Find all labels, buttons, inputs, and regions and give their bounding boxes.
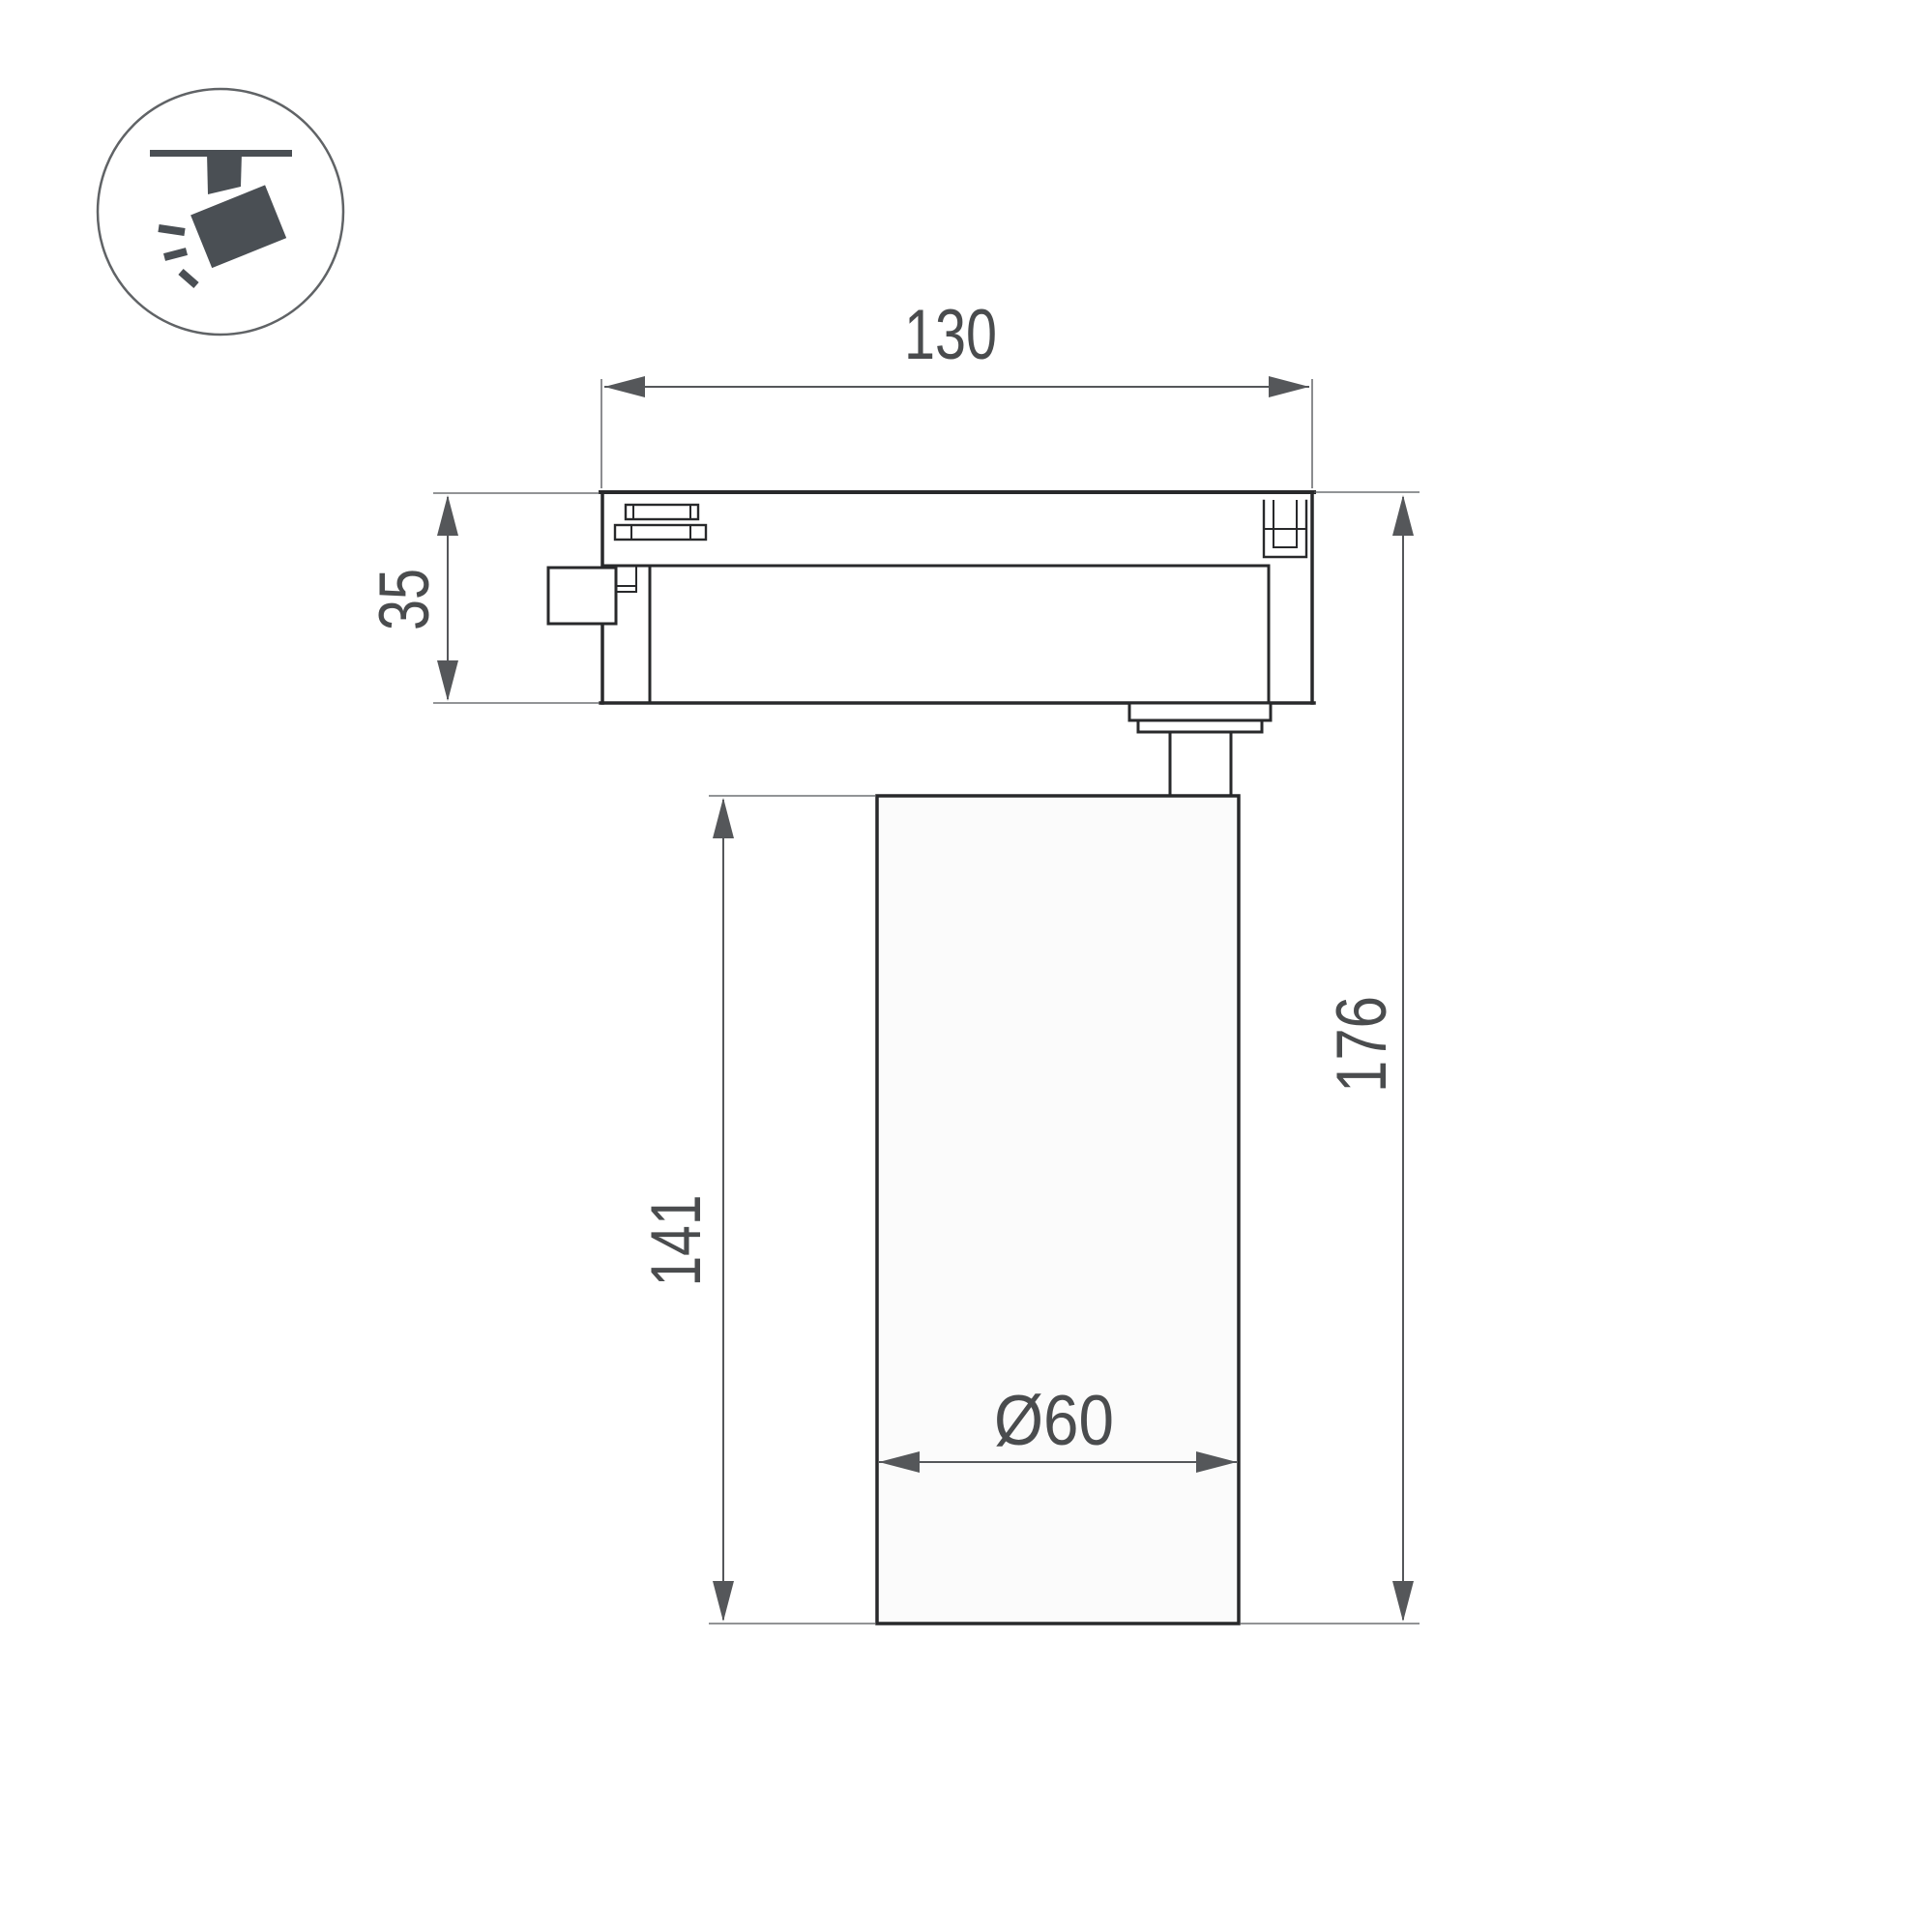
arrowhead-down [1392, 1581, 1414, 1622]
light-ray-icon [159, 228, 185, 232]
adapter-latch [548, 568, 616, 624]
dim-label-35: 35 [366, 569, 444, 630]
adapter-contact-clip-upper [626, 505, 698, 519]
track-adapter-view [548, 492, 1314, 703]
joint-flange-lower [1138, 720, 1262, 732]
dim-lamp-body-height: 141 [637, 796, 875, 1624]
dim-label-141: 141 [637, 1195, 716, 1287]
arrowhead-left [604, 376, 645, 397]
adapter-end-contact-inner [1273, 501, 1297, 547]
dim-track-adapter-length: 130 [601, 296, 1312, 488]
drawing-canvas: 130 35 141 176 [0, 0, 1932, 1932]
dim-label-d60: Ø60 [994, 1382, 1114, 1460]
dimension-drawing-page: 130 35 141 176 [0, 0, 1932, 1932]
arrowhead-up [713, 798, 734, 838]
lamp-cylinder [877, 796, 1239, 1624]
arrowhead-right [1269, 376, 1309, 397]
joint-flange-upper [1129, 703, 1271, 720]
dim-label-130: 130 [904, 296, 997, 374]
arrowhead-up [437, 495, 458, 536]
dim-label-176: 176 [1323, 996, 1401, 1093]
joint-stem [1170, 732, 1231, 796]
arrowhead-down [437, 660, 458, 701]
track-spotlight-icon [98, 89, 343, 335]
arrowhead-up [1392, 495, 1414, 536]
arrowhead-down [713, 1581, 734, 1622]
lamp-body-view [877, 703, 1271, 1624]
adapter-contact-clip-lower [615, 525, 706, 540]
